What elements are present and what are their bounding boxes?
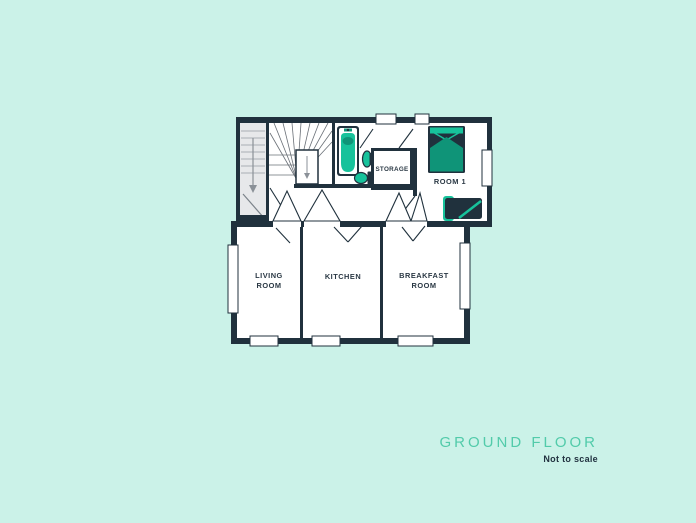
side-stairs-strip [236,123,269,222]
living-kitchen-wall [300,227,303,338]
window [228,245,238,313]
room-label-living-2: ROOM [257,281,282,290]
kitchen-breakfast-wall [380,227,383,338]
sink-icon [363,151,373,167]
storage-wall-bottom [371,187,413,190]
room-label-room1: ROOM 1 [434,177,466,186]
strip-right-wall [266,123,269,221]
window [312,336,340,346]
room-label-storage: STORAGE [375,166,408,173]
window [482,150,492,186]
scale-note: Not to scale [439,454,598,464]
window [415,114,429,124]
window [376,114,396,124]
page: LIVING ROOM KITCHEN BREAKFAST ROOM ROOM … [0,0,696,523]
storage-wall-top [371,148,413,151]
room1-left-wall [413,148,417,196]
window [250,336,278,346]
room-label-kitchen: KITCHEN [325,272,361,281]
footer: GROUND FLOOR Not to scale [439,434,598,464]
stair-bath-wall [332,123,335,187]
window [398,336,433,346]
window [460,243,470,309]
strip-bottom-wall [236,215,269,222]
bathtub-icon [337,126,359,176]
room-label-breakfast: BREAKFAST [399,271,449,280]
sofa-icon [443,196,482,221]
toilet-icon [355,172,372,185]
page-title: GROUND FLOOR [439,434,598,451]
room-label-living: LIVING [255,271,283,280]
room-label-breakfast-2: ROOM [412,281,437,290]
bed-icon [428,126,465,173]
storage-wall-right [410,148,413,190]
